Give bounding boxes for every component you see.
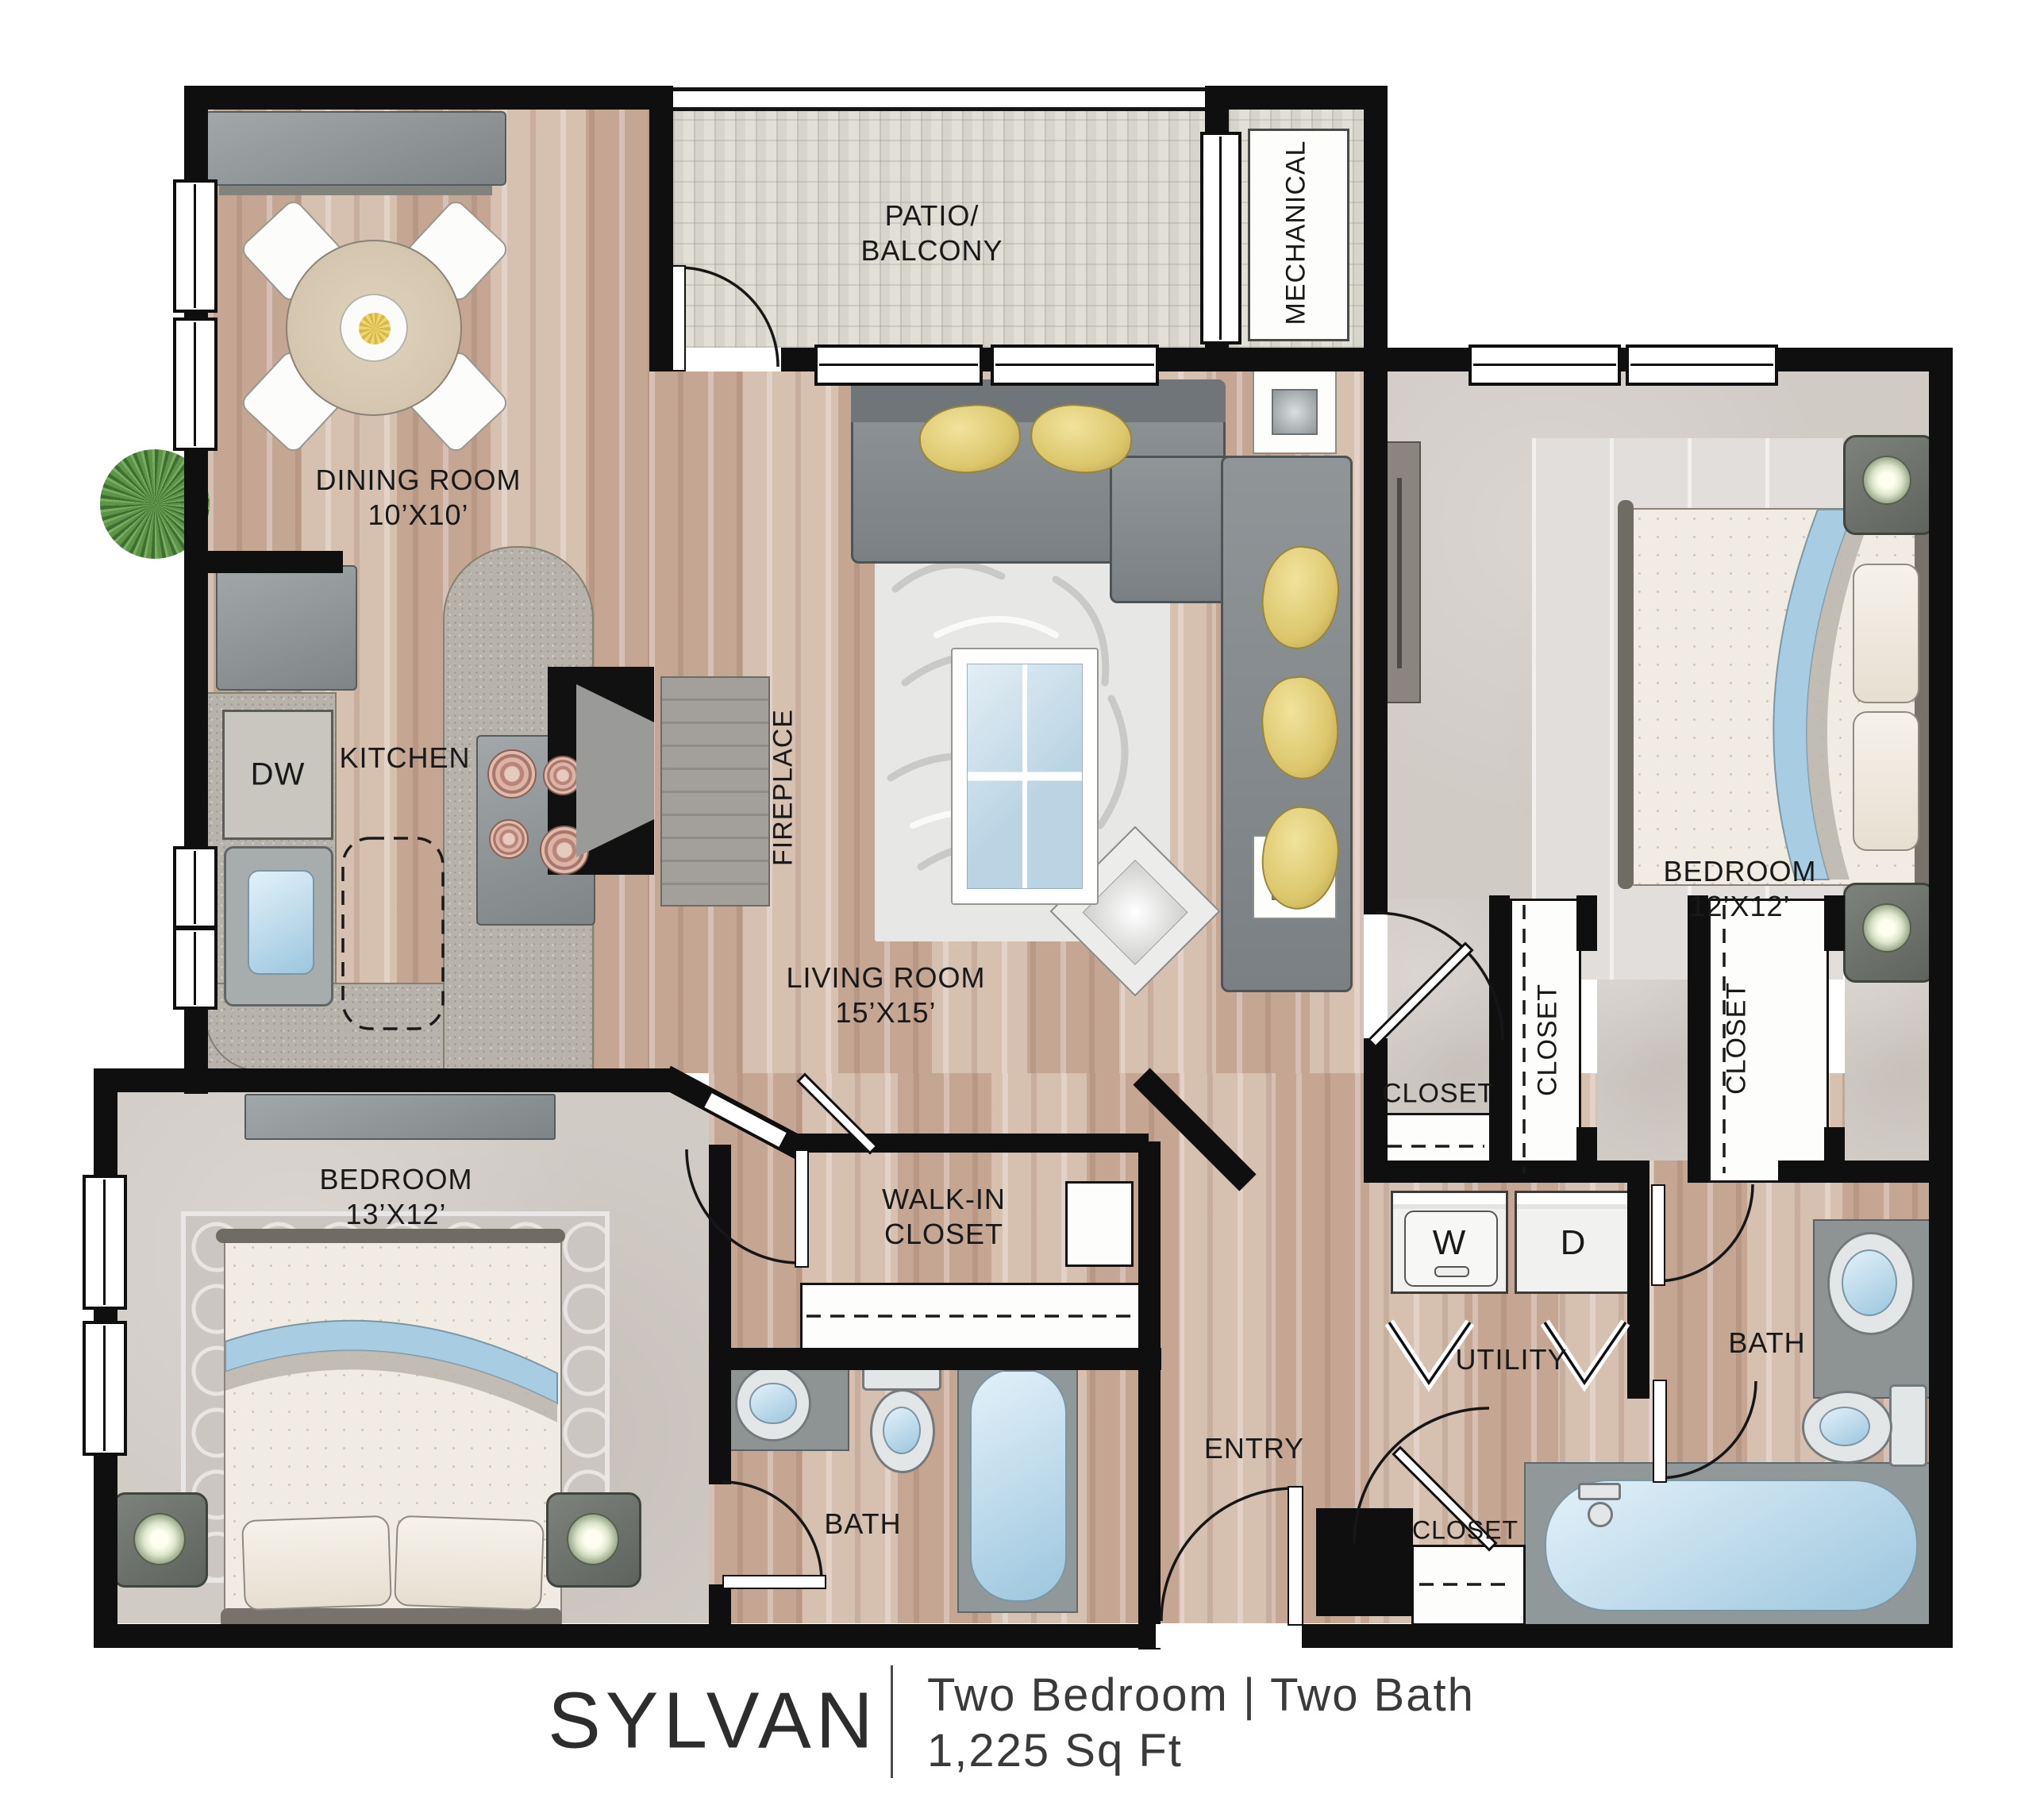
entry-closet-label: CLOSET: [1412, 1515, 1519, 1545]
patio-line1: PATIO/: [860, 198, 1003, 233]
hall-closet-label: CLOSET: [1382, 1077, 1495, 1110]
bedroom2-closet-b-label: CLOSET: [1720, 982, 1753, 1095]
bath2-door-leaf: [1653, 1380, 1667, 1483]
plan-name: SYLVAN: [548, 1676, 878, 1767]
bedroom2-dims: 12’X12’: [1663, 889, 1816, 924]
fireplace-label: FIREPLACE: [767, 709, 799, 866]
kitchen-label: KITCHEN: [339, 741, 470, 776]
bedroom2-name: BEDROOM: [1663, 854, 1816, 889]
walkin-line1: WALK-IN: [882, 1182, 1006, 1217]
utility-label: UTILITY: [1455, 1342, 1567, 1377]
bath2-label: BATH: [1728, 1326, 1805, 1361]
bedroom1-door-leaf: [795, 1149, 809, 1268]
patio-door-leaf: [672, 265, 686, 371]
dining-room-dims: 10’X10’: [316, 498, 522, 533]
mechanical-label: MECHANICAL: [1280, 140, 1312, 325]
dishwasher-label: DW: [251, 756, 306, 795]
bath1-label: BATH: [824, 1507, 901, 1542]
living-room-label: LIVING ROOM 15’X15’: [786, 960, 985, 1030]
bedroom1-dims: 13’X12’: [319, 1197, 472, 1232]
bedroom1-label: BEDROOM 13’X12’: [319, 1162, 472, 1232]
bedroom2-closet-a-label: CLOSET: [1531, 983, 1564, 1096]
plan-area-line: 1,225 Sq Ft: [927, 1724, 1183, 1777]
dryer-label: D: [1561, 1222, 1587, 1264]
bedroom2-label: BEDROOM 12’X12’: [1663, 854, 1816, 924]
living-room-dims: 15’X15’: [786, 995, 985, 1030]
bath1-door-leaf: [722, 1575, 826, 1589]
washer-label: W: [1433, 1222, 1467, 1264]
footer-divider: [891, 1665, 893, 1778]
entry-label: ENTRY: [1204, 1431, 1304, 1466]
floor-plan: DINING ROOM 10’X10’ PATIO/ BALCONY MECHA…: [0, 0, 2044, 1813]
living-room-name: LIVING ROOM: [786, 960, 985, 995]
bedroom1-name: BEDROOM: [319, 1162, 472, 1197]
patio-label: PATIO/ BALCONY: [860, 198, 1003, 268]
entry-door-leaf: [1288, 1486, 1303, 1626]
walkin-closet-label: WALK-IN CLOSET: [882, 1182, 1006, 1252]
plan-type-line: Two Bedroom | Two Bath: [927, 1669, 1475, 1722]
patio-line2: BALCONY: [860, 233, 1003, 268]
dining-room-name: DINING ROOM: [316, 463, 522, 498]
hall-bath2-door-leaf: [1651, 1184, 1665, 1286]
walkin-line2: CLOSET: [882, 1217, 1006, 1252]
dining-room-label: DINING ROOM 10’X10’: [316, 463, 522, 533]
